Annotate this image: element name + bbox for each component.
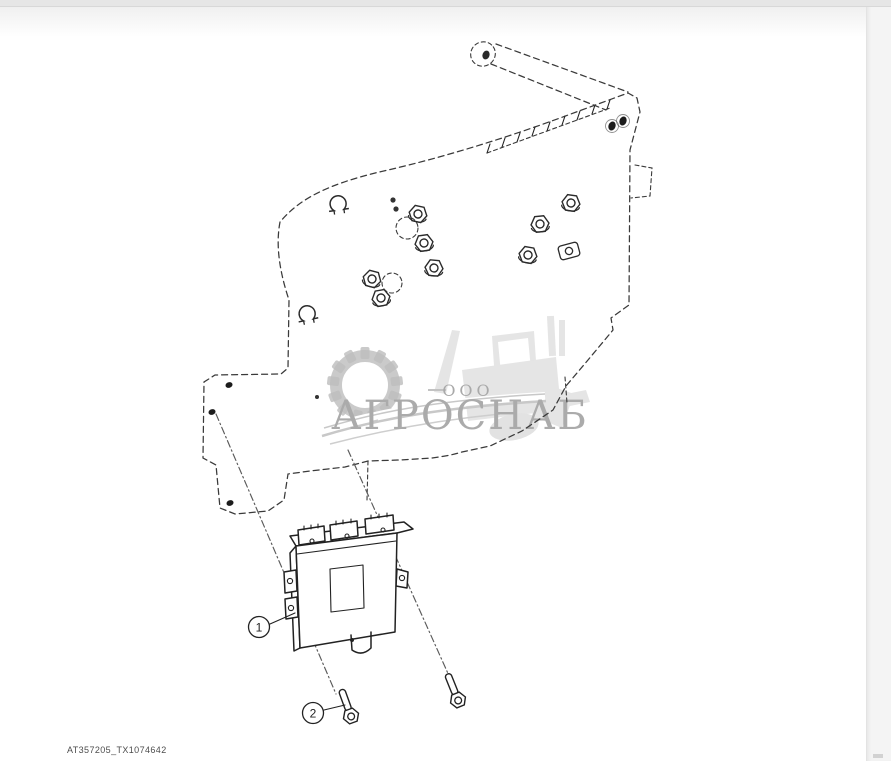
window-top-bar — [0, 0, 891, 7]
bolt-right — [440, 671, 468, 709]
stud-clip-icon — [296, 304, 319, 326]
bolt-left — [334, 687, 361, 725]
control-unit — [284, 513, 413, 653]
nut-icon — [518, 246, 538, 265]
nut-icon — [414, 234, 434, 252]
window-right-gutter — [866, 0, 891, 761]
clip-nut-icon — [558, 242, 581, 261]
watermark-name: АГРОСНАБ — [331, 393, 589, 439]
parts-diagram: ООО АГРОСНАБ — [0, 0, 891, 761]
watermark: ООО АГРОСНАБ — [320, 316, 590, 445]
nut-icon — [371, 289, 391, 308]
plate-fasteners — [208, 115, 630, 507]
callout-2-label: 2 — [310, 707, 317, 721]
nut-icon — [424, 259, 443, 276]
scroll-nub — [873, 754, 883, 758]
callout-2: 2 — [303, 703, 346, 724]
arm-hole — [481, 50, 491, 61]
nut-icon — [561, 194, 581, 212]
nut-icon — [530, 215, 550, 233]
figure-id-label: AT357205_TX1074642 — [67, 745, 167, 755]
stud-clip-icon — [327, 194, 349, 215]
callout-1-label: 1 — [256, 621, 263, 635]
nut-icon — [408, 204, 429, 223]
nut-icon — [361, 269, 382, 289]
page: ООО АГРОСНАБ — [0, 0, 891, 761]
mounting-plate-outline — [203, 37, 652, 514]
